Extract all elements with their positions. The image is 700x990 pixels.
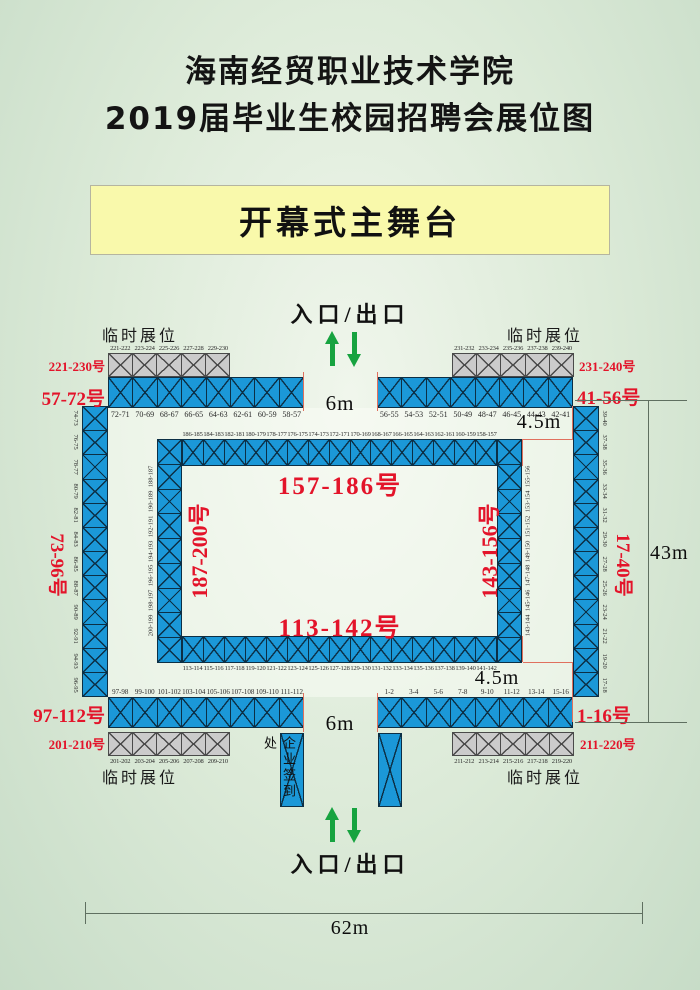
booth-number: 54-53 [402,410,427,419]
booth-number: 129-130 [350,665,371,672]
arrow-stem [352,332,357,355]
range-label-201-210: 201-210号 [25,734,105,753]
dim-height: 43m [650,542,698,565]
booth-number: 123-124 [287,665,308,672]
arrow-head [347,354,361,367]
booth-number: 162-161 [434,431,455,438]
booth-cell [254,698,278,727]
booth-number: 99-100 [133,688,158,696]
booth-number: 3-4 [402,688,427,696]
booth-cell [109,733,132,755]
booth-cell [329,440,350,465]
booth-cell [132,354,156,376]
arrow-up-icon [325,807,339,843]
booth-number: 229-230 [206,345,230,352]
booth-cell [181,698,205,727]
booth-number: 180-179 [245,431,266,438]
booth-number: 168-167 [371,431,392,438]
booth-number: 135-136 [413,665,434,672]
booth-number: 178-177 [266,431,287,438]
booth-numbers: 72-7170-6968-6766-6564-6362-6160-5958-57 [108,410,304,419]
booth-number: 97-98 [108,688,133,696]
range-label-97-112: 97-112号 [22,701,105,728]
booth-number: 109-110 [255,688,280,696]
booth-cell [157,698,181,727]
floorplan-poster: 海南经贸职业技术学院 2019届毕业生校园招聘会展位图 开幕式主舞台 入口/出口… [0,0,700,990]
arrow-stem [352,808,357,831]
booth-numbers: 39-4037-3835-3633-3431-3229-3027-2825-26… [601,406,609,697]
booth-number: 37-38 [593,438,617,446]
booth-cell [203,637,224,662]
booth-number: 186-185 [182,431,203,438]
booth-cell [206,698,230,727]
booth-number: 182-181 [224,431,245,438]
booth-cell [158,637,181,662]
booth-number: 239-240 [550,345,574,352]
booth-number: 172-171 [329,431,350,438]
entrance-bottom-label: 入口/出口 [230,847,470,879]
temp-booths-221-230: 221-222223-224225-226227-228229-230 [108,353,230,377]
booth-number: 62-61 [231,410,256,419]
booth-cell [500,354,524,376]
booth-cell [206,378,230,407]
dim-line-tick [575,722,687,723]
range-label-211-220: 211-220号 [580,734,636,753]
booth-number: 237-238 [525,345,549,352]
booth-number: 103-104 [182,688,207,696]
booths-1-16: 1-23-45-67-89-1011-1213-1415-16 [377,697,573,728]
booth-number: 72-71 [108,410,133,419]
arrow-down-icon [347,331,361,367]
dim-gap-bottom: 6m [303,711,377,736]
dim-aisle-bottom: 4.5m [458,667,536,690]
booth-cell [109,354,132,376]
booth-cell [453,354,476,376]
booth-cell [499,378,523,407]
booth-cell [454,637,475,662]
booth-cell [450,378,474,407]
booths-17-40: 39-4037-3835-3633-3431-3229-3027-2825-26… [573,406,599,697]
booth-number: 223-224 [132,345,156,352]
booth-number: 227-228 [181,345,205,352]
booth-number: 127-128 [329,665,350,672]
booth-cell [279,378,303,407]
booth-cell [287,440,308,465]
booths-73-96: 74-7376-7578-7780-7982-8184-8386-8588-87… [82,406,108,697]
arrow-up-icon [325,331,339,367]
temp-caption-bottom-left: 临时展位 [85,764,195,788]
dim-line-tick [85,902,86,924]
booth-number: 5-6 [426,688,451,696]
booth-number: 107-108 [231,688,256,696]
booth-number: 74-73 [64,414,88,422]
booth-number: 58-57 [280,410,305,419]
booth-cell [549,354,573,376]
booth-cell [475,378,499,407]
booth-cell [266,440,287,465]
arrow-down-icon [347,807,361,843]
booth-number: 198-197 [139,597,164,605]
booth-cell [412,440,433,465]
booth-number: 117-118 [224,665,245,672]
booth-cell [370,440,391,465]
page-title: 海南经贸职业技术学院 [0,46,700,91]
booth-number: 96-95 [64,681,88,689]
booth-cell [181,378,205,407]
arrow-stem [330,343,335,366]
booth-number: 105-106 [206,688,231,696]
range-label-157-186: 157-186号 [240,466,440,502]
booth-cell [205,354,229,376]
booth-numbers: 231-232233-234235-236237-238239-240 [452,345,574,352]
booth-number: 194-193 [139,547,164,555]
booth-number: 184-183 [203,431,224,438]
booth-number: 70-69 [133,410,158,419]
temp-booths-211-220: 211-212213-214215-216217-218219-220 [452,732,574,756]
booth-number: 155-156 [516,472,541,480]
booth-number: 192-191 [139,522,164,530]
booth-number: 225-226 [157,345,181,352]
booth-cell [181,354,205,376]
dim-line-tick [642,902,643,924]
range-label-113-142: 113-142号 [240,608,440,644]
range-label-231-240: 231-240号 [579,356,635,375]
temp-booths-231-240: 231-232233-234235-236237-238239-240 [452,353,574,377]
checkin-desk-right [378,733,402,807]
booth-cell [498,637,521,662]
booth-number: 174-173 [308,431,329,438]
booth-number: 233-234 [476,345,500,352]
booth-cell [525,733,549,755]
temp-caption-top-right: 临时展位 [490,322,600,346]
booth-cell [378,698,401,727]
booth-cell [132,378,156,407]
booths-157-186: 186-185184-183182-181180-179178-177176-1… [182,439,497,466]
booth-cell [454,440,475,465]
booth-number: 113-114 [182,665,203,672]
booth-cell [224,440,245,465]
booth-numbers: 221-222223-224225-226227-228229-230 [108,345,230,352]
booth-numbers: 97-9899-100101-102103-104105-106107-1081… [108,688,304,696]
dim-gap-top: 6m [303,391,377,416]
booth-cell [157,378,181,407]
booth-number: 137-138 [434,665,455,672]
booth-number: 94-93 [64,657,88,665]
booth-number: 64-63 [206,410,231,419]
booth-number: 131-132 [371,665,392,672]
booths-57-72: 72-7170-6968-6766-6564-6362-6160-5958-57 [108,377,304,408]
dim-line-tick [575,400,687,401]
range-label-187-200: 187-200号 [185,492,211,610]
booth-cell [426,378,450,407]
booth-number: 147-148 [516,572,541,580]
booth-number: 160-159 [455,431,476,438]
booth-number: 80-79 [64,487,88,495]
booth-number: 39-40 [593,414,617,422]
booth-cell [475,637,496,662]
temp-caption-bottom-right: 临时展位 [490,764,600,788]
booth-cell [476,354,500,376]
booth-number: 145-146 [516,597,541,605]
booth-number: 176-175 [287,431,308,438]
booth-number: 1-2 [377,688,402,696]
booth-cell [475,440,496,465]
booth-number: 50-49 [451,410,476,419]
booth-number: 133-134 [392,665,413,672]
booth-cell [279,698,303,727]
booth-cell [183,440,203,465]
temp-booths-201-210: 201-202203-204205-206207-208209-210 [108,732,230,756]
gap-line [377,372,378,411]
booth-cell [476,733,500,755]
booth-number: 190-189 [139,497,164,505]
booth-number: 31-32 [593,511,617,519]
dim-line-horizontal [85,913,643,914]
booth-number: 143-144 [516,622,541,630]
entrance-top-label: 入口/出口 [230,297,470,329]
booth-cell [401,698,425,727]
aisle-line [522,636,523,662]
page-subtitle: 2019届毕业生校园招聘会展位图 [0,93,700,138]
booth-cell [109,378,132,407]
booth-numbers: 186-185184-183182-181180-179178-177176-1… [182,431,497,438]
dim-aisle-top: 4.5m [500,411,578,434]
booths-187-200: 188-187190-189192-191194-193196-195198-1… [157,439,182,663]
booth-cell [308,440,329,465]
booth-cell [523,378,547,407]
booth-number: 231-232 [452,345,476,352]
booth-number: 188-187 [139,472,164,480]
range-label-143-156: 143-156号 [475,492,501,610]
booth-cell [426,698,450,727]
booth-number: 235-236 [501,345,525,352]
booth-cell [156,354,180,376]
booth-cell [401,378,425,407]
booth-cell [379,734,401,806]
booth-cell [548,698,572,727]
booth-number: 121-122 [266,665,287,672]
booth-number: 15-16 [549,688,574,696]
main-stage: 开幕式主舞台 [90,185,610,255]
booth-number: 153-154 [516,497,541,505]
booth-cell [549,733,573,755]
booth-number: 92-91 [64,632,88,640]
arrow-head [347,830,361,843]
range-label-41-56: 41-56号 [577,383,640,410]
booth-number: 17-18 [593,681,617,689]
booth-number: 19-20 [593,657,617,665]
gap-line [377,693,378,732]
booth-number: 21-22 [593,632,617,640]
booth-cell [525,354,549,376]
booth-cell [433,440,454,465]
booths-97-112: 97-9899-100101-102103-104105-106107-1081… [108,697,304,728]
booth-number: 200-199 [139,622,164,630]
booth-cell [523,698,547,727]
booth-cell [132,733,156,755]
main-stage-label: 开幕式主舞台 [239,196,461,244]
booth-number: 60-59 [255,410,280,419]
booth-cell [498,440,521,464]
booth-number: 151-152 [516,522,541,530]
booth-number: 82-81 [64,511,88,519]
booth-number: 52-51 [426,410,451,419]
booth-cell [475,698,499,727]
booth-cell [230,378,254,407]
booths-41-56: 56-5554-5352-5150-4948-4746-4544-4342-41 [377,377,573,408]
aisle-line [522,439,523,466]
booth-cell [158,440,181,464]
range-label-57-72: 57-72号 [22,384,105,411]
booth-cell [453,733,476,755]
booth-number: 78-77 [64,463,88,471]
booth-cell [230,698,254,727]
booth-number: 209-210 [206,758,230,765]
dim-line-vertical [648,400,649,722]
booth-cell [254,378,278,407]
booth-cell [181,733,205,755]
booth-cell [183,637,203,662]
booth-number: 125-126 [308,665,329,672]
booth-cell [203,440,224,465]
booth-cell [156,733,180,755]
booth-number: 33-34 [593,487,617,495]
booth-cell [350,440,371,465]
booth-number: 101-102 [157,688,182,696]
dim-width: 62m [300,917,400,940]
range-label-1-16: 1-16号 [577,701,631,728]
booth-number: 170-169 [350,431,371,438]
booth-number: 35-36 [593,463,617,471]
booth-cell [500,733,524,755]
booth-cell [548,378,572,407]
booth-number: 111-112 [280,688,305,696]
booth-number: 48-47 [475,410,500,419]
booth-number: 166-165 [392,431,413,438]
booth-cell [205,733,229,755]
booth-cell [132,698,156,727]
booth-number: 76-75 [64,438,88,446]
booth-numbers: 74-7376-7578-7780-7982-8184-8386-8588-87… [72,406,80,697]
booth-number: 66-65 [182,410,207,419]
booth-number: 196-195 [139,572,164,580]
range-label-17-40: 17-40号 [614,520,636,610]
booth-cell [245,440,266,465]
booth-number: 158-157 [476,431,497,438]
booth-number: 164-163 [413,431,434,438]
booth-cell [450,698,474,727]
booth-numbers: 155-156153-154151-152149-150147-148145-1… [524,464,532,639]
aisle-line [572,662,573,722]
temp-caption-top-left: 临时展位 [85,322,195,346]
booth-number: 221-222 [108,345,132,352]
arrow-stem [330,819,335,842]
booth-number: 211-212 [452,758,476,765]
booth-number: 68-67 [157,410,182,419]
booth-cell [391,440,412,465]
booth-cell [378,378,401,407]
booth-number: 115-116 [203,665,224,672]
booth-cell [499,698,523,727]
aisle-line [523,662,573,663]
booth-numbers: 113-114115-116117-118119-120121-122123-1… [182,665,497,672]
booth-number: 119-120 [245,665,266,672]
booth-number: 149-150 [516,547,541,555]
aisle-line [523,439,573,440]
range-label-73-96: 73-96号 [48,520,70,610]
booth-number: 56-55 [377,410,402,419]
range-label-221-230: 221-230号 [25,356,105,375]
checkin-label: 企业签到处 [259,736,297,814]
booth-cell [109,698,132,727]
booth-numbers: 188-187190-189192-191194-193196-195198-1… [147,464,155,639]
